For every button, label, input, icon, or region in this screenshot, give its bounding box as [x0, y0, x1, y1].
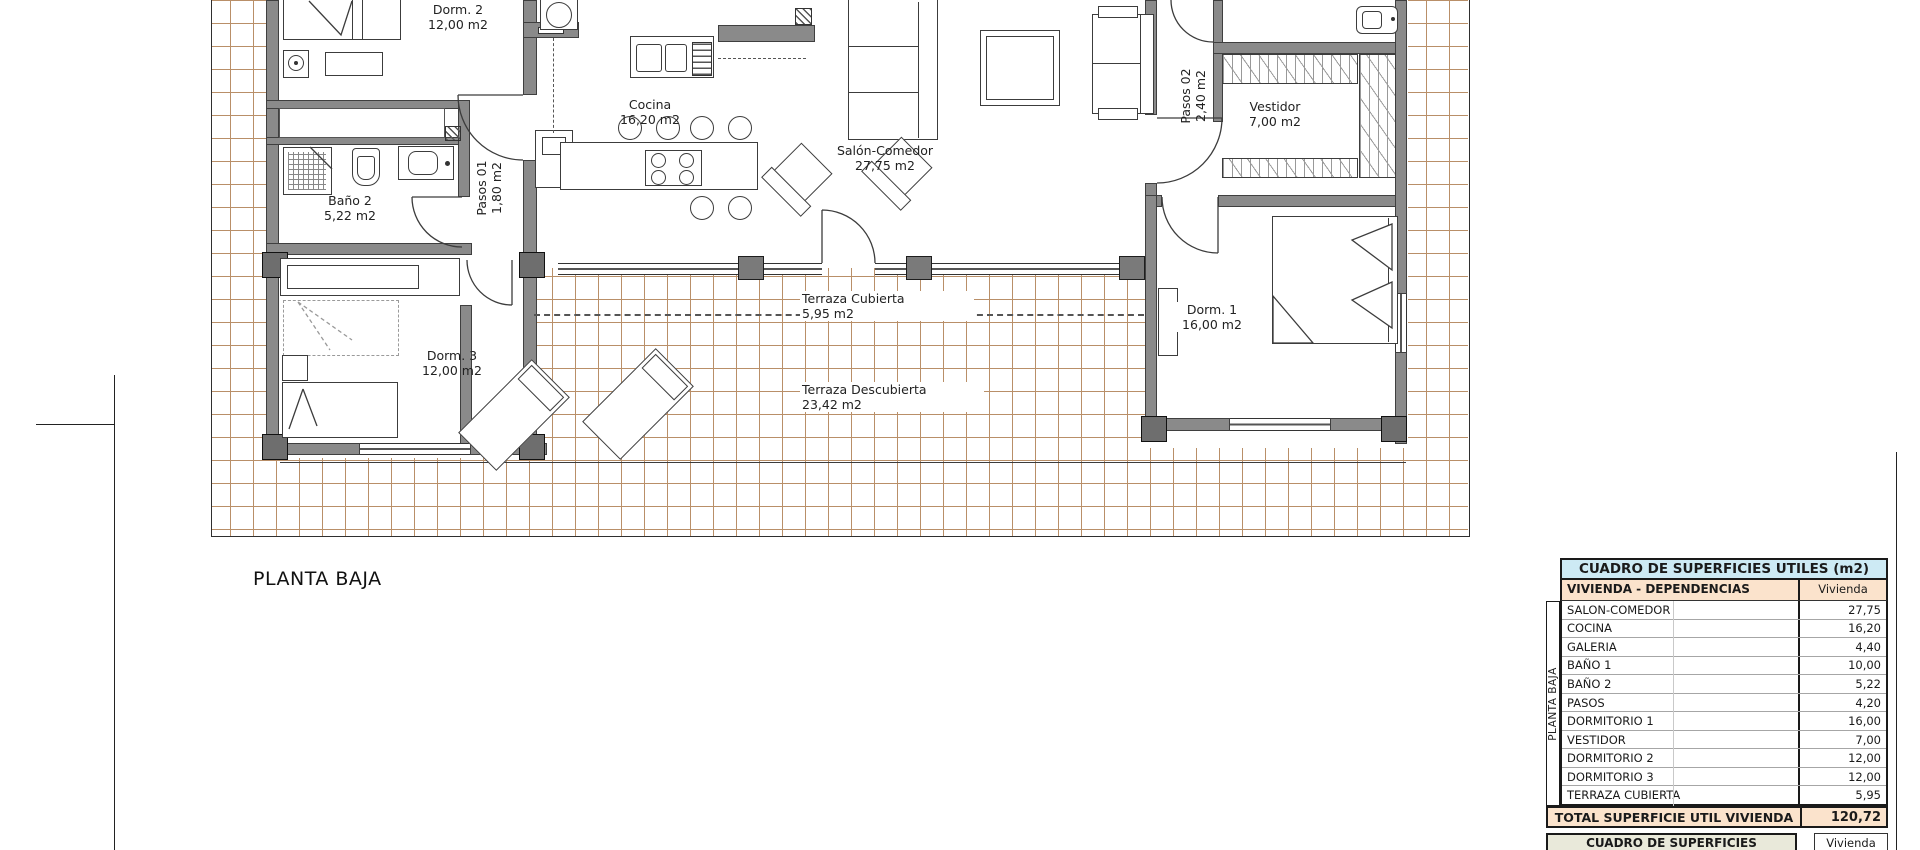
- row-label: COCINA: [1562, 620, 1798, 638]
- sink-basin: [408, 151, 438, 175]
- room-label-bano-2: Baño 2 5,22 m2: [300, 193, 400, 223]
- sliding-door-marker: [445, 126, 461, 141]
- row-label: PASOS: [1562, 694, 1798, 712]
- wall-pier: [738, 256, 764, 280]
- sofa-cushion-line: [1093, 63, 1140, 64]
- row-label: BAÑO 1: [1562, 657, 1798, 675]
- row-label: BAÑO 2: [1562, 675, 1798, 693]
- room-area: 16,20 m2: [600, 112, 700, 127]
- wall-pier: [906, 256, 932, 280]
- room-label-salon-comedor: Salón-Comedor 27,75 m2: [820, 143, 950, 173]
- sheet-frame-left-tick: [36, 424, 114, 425]
- bed-frame-line: [362, 0, 363, 40]
- sofa-armrest: [1098, 6, 1138, 18]
- sheet-frame-left-line: [114, 375, 115, 850]
- room-name: Pasos 02: [1178, 68, 1193, 123]
- utiles-table-rows: SALON-COMEDOR27,75 COCINA16,20 GALERIA4,…: [1560, 601, 1888, 806]
- wardrobe-hatched: [1359, 54, 1396, 178]
- row-value: 5,22: [1798, 675, 1886, 693]
- row-label: VESTIDOR: [1562, 731, 1798, 749]
- room-name: Dorm. 1: [1162, 302, 1262, 317]
- table-row: DORMITORIO 212,00: [1562, 749, 1886, 768]
- room-name: Dorm. 3: [402, 348, 502, 363]
- toilet-bano1-inner: [1362, 11, 1382, 29]
- sofa-armrest: [1098, 108, 1138, 120]
- room-name: Salón-Comedor: [820, 143, 950, 158]
- utiles-col1-header: VIVIENDA - DEPENDENCIAS: [1562, 580, 1798, 600]
- window: [558, 263, 738, 275]
- washing-machine-drum: [546, 2, 572, 28]
- table-row: TERRAZA CUBIERTA5,95: [1562, 786, 1886, 804]
- room-name: Baño 2: [300, 193, 400, 208]
- room-area: 16,00 m2: [1162, 317, 1262, 332]
- porch-edge-line: [280, 462, 1406, 463]
- wall: [266, 137, 462, 145]
- burner: [679, 153, 694, 168]
- row-label: DORMITORIO 3: [1562, 768, 1798, 786]
- nightstand: [282, 355, 308, 381]
- overhang-dashed-line: [553, 38, 554, 133]
- row-label: SALON-COMEDOR: [1562, 601, 1798, 619]
- row-value: 12,00: [1798, 768, 1886, 786]
- table-row: PASOS4,20: [1562, 694, 1886, 713]
- sofa-back-line: [1140, 15, 1141, 113]
- room-area: 12,00 m2: [402, 363, 502, 378]
- utiles-side-label-text: PLANTA BAJA: [1547, 667, 1559, 741]
- sofa-cushion-line: [849, 46, 918, 47]
- row-value: 12,00: [1798, 749, 1886, 767]
- row-value: 16,20: [1798, 620, 1886, 638]
- total-value: 120,72: [1800, 808, 1886, 826]
- room-label-cocina: Cocina 16,20 m2: [600, 97, 700, 127]
- faucet-dot: [445, 161, 450, 166]
- table-row: VESTIDOR7,00: [1562, 731, 1886, 750]
- wall: [266, 0, 279, 458]
- wall: [1145, 195, 1157, 442]
- room-area: 2,40 m2: [1193, 68, 1208, 123]
- room-name: Vestidor: [1225, 99, 1325, 114]
- stool: [728, 116, 752, 140]
- table-row: BAÑO 110,00: [1562, 657, 1886, 676]
- bed-dorm2: [283, 0, 401, 40]
- row-value: 16,00: [1798, 712, 1886, 730]
- stool: [690, 196, 714, 220]
- room-label-dorm-3: Dorm. 3 12,00 m2: [402, 348, 502, 378]
- toilet-seat: [357, 156, 375, 180]
- room-label-pasos-01: Pasos 01 1,80 m2: [449, 173, 529, 203]
- burner: [651, 170, 666, 185]
- row-label: DORMITORIO 2: [1562, 749, 1798, 767]
- bed-frame-line: [352, 0, 353, 40]
- utiles-total-row: TOTAL SUPERFICIE UTIL VIVIENDA 120,72: [1546, 806, 1888, 828]
- wall: [1218, 195, 1406, 207]
- room-name: Cocina: [600, 97, 700, 112]
- closet-dorm2: [279, 108, 445, 138]
- row-value: 4,40: [1798, 638, 1886, 656]
- overhang-dashed-line: [718, 58, 806, 59]
- room-label-terraza-cubierta: Terraza Cubierta 5,95 m2: [800, 291, 974, 321]
- room-name: Terraza Descubierta: [802, 382, 982, 397]
- room-label-terraza-descubierta: Terraza Descubierta 23,42 m2: [800, 382, 984, 412]
- wall: [718, 25, 815, 42]
- wardrobe-hatched: [1222, 54, 1358, 84]
- wall: [1213, 42, 1406, 54]
- room-name: Pasos 01: [474, 160, 489, 215]
- room-area: 5,95 m2: [802, 306, 972, 321]
- room-area: 5,22 m2: [300, 208, 400, 223]
- construidas-col2-header: Vivienda: [1814, 833, 1888, 850]
- row-value: 5,95: [1798, 786, 1886, 804]
- flush-dot: [1391, 17, 1395, 21]
- sofa-back-line: [918, 2, 919, 138]
- table-column-divider: [1673, 601, 1674, 806]
- row-label: TERRAZA CUBIERTA: [1562, 786, 1798, 804]
- shower-tray: [288, 152, 326, 190]
- room-label-pasos-02: Pasos 02 2,40 m2: [1153, 81, 1233, 111]
- total-label: TOTAL SUPERFICIE UTIL VIVIENDA: [1548, 808, 1800, 826]
- sofa-cushion-line: [849, 92, 918, 93]
- room-area: 1,80 m2: [489, 160, 504, 215]
- table-row: DORMITORIO 116,00: [1562, 712, 1886, 731]
- window: [932, 263, 1121, 275]
- window: [1230, 418, 1330, 431]
- table-row: GALERIA4,40: [1562, 638, 1886, 657]
- wardrobe-hatched: [1222, 158, 1358, 178]
- wall: [266, 243, 472, 255]
- burner: [651, 153, 666, 168]
- column: [519, 252, 545, 278]
- row-label: DORMITORIO 1: [1562, 712, 1798, 730]
- wardrobe-inner: [287, 265, 419, 289]
- sofa-two-seat: [1092, 14, 1154, 114]
- drainer-hatch: [692, 42, 712, 76]
- coffee-table-inner: [986, 36, 1054, 100]
- kitchen-sink: [665, 44, 687, 72]
- wall: [523, 0, 537, 95]
- utiles-col2-header: Vivienda: [1798, 580, 1886, 600]
- plan-title: PLANTA BAJA: [253, 568, 382, 590]
- sliding-door-marker: [795, 8, 812, 25]
- table-row: DORMITORIO 312,00: [1562, 768, 1886, 787]
- architectural-sheet: Dorm. 2 12,00 m2 Cocina 16,20 m2 Salón-C…: [0, 0, 1920, 850]
- row-label: GALERIA: [1562, 638, 1798, 656]
- table-row: SALON-COMEDOR27,75: [1562, 601, 1886, 620]
- window: [764, 263, 822, 275]
- row-value: 27,75: [1798, 601, 1886, 619]
- column: [1381, 416, 1407, 442]
- row-value: 7,00: [1798, 731, 1886, 749]
- headboard-line: [1388, 218, 1389, 342]
- bed-dorm3: [282, 382, 398, 438]
- window: [875, 263, 906, 275]
- construidas-table-title: CUADRO DE SUPERFICIES CONSTRUIDAS (m2): [1546, 833, 1797, 850]
- utiles-table-subheader: VIVIENDA - DEPENDENCIAS Vivienda: [1560, 580, 1888, 601]
- table-row: BAÑO 25,22: [1562, 675, 1886, 694]
- lamp-dot: [294, 61, 298, 65]
- kitchen-sink: [636, 44, 662, 72]
- dresser: [325, 52, 383, 76]
- column: [1141, 416, 1167, 442]
- utiles-side-label: PLANTA BAJA: [1546, 601, 1560, 806]
- row-value: 4,20: [1798, 694, 1886, 712]
- stool: [728, 196, 752, 220]
- sheet-frame-right-line: [1896, 452, 1897, 850]
- room-name: Dorm. 2: [408, 2, 508, 17]
- room-label-dorm-1: Dorm. 1 16,00 m2: [1160, 302, 1264, 332]
- room-label-dorm-2: Dorm. 2 12,00 m2: [408, 2, 508, 32]
- bed-optional-dashed: [283, 300, 399, 356]
- room-name: Terraza Cubierta: [802, 291, 972, 306]
- window: [360, 443, 470, 455]
- utiles-table-title: CUADRO DE SUPERFICIES UTILES (m2): [1560, 558, 1888, 580]
- table-row: COCINA16,20: [1562, 620, 1886, 639]
- room-label-vestidor: Vestidor 7,00 m2: [1225, 99, 1325, 129]
- room-area: 7,00 m2: [1225, 114, 1325, 129]
- row-value: 10,00: [1798, 657, 1886, 675]
- room-area: 27,75 m2: [820, 158, 950, 173]
- sofa-three-seat: [848, 0, 938, 140]
- room-area: 12,00 m2: [408, 17, 508, 32]
- bed-dorm1: [1272, 216, 1398, 344]
- wall-pier: [1119, 256, 1145, 280]
- burner: [679, 170, 694, 185]
- room-area: 23,42 m2: [802, 397, 982, 412]
